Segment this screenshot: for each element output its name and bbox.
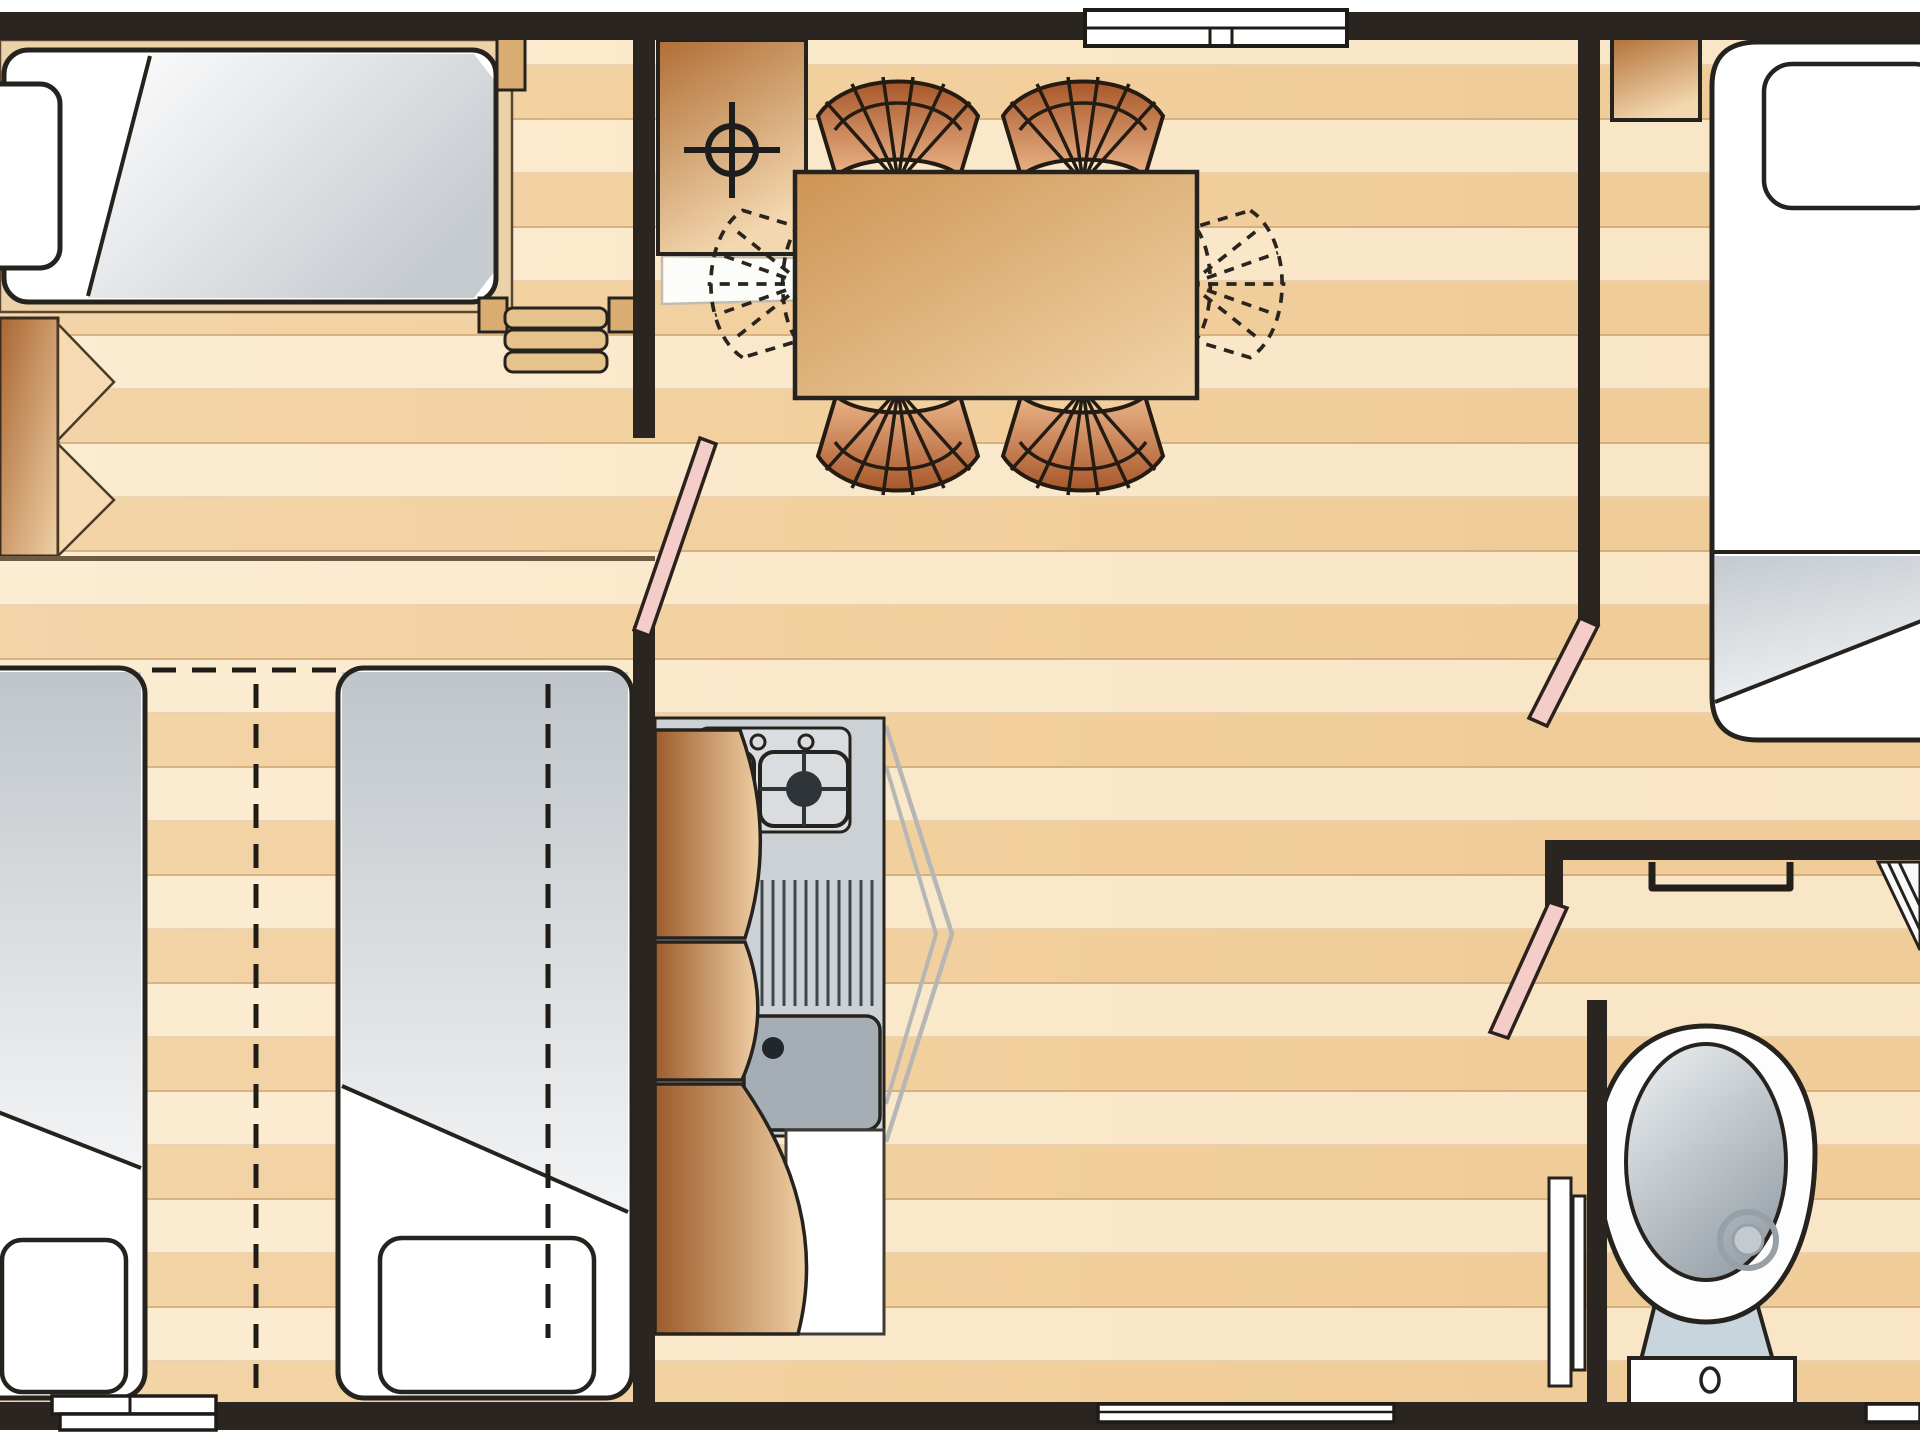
- wicker-chair-bottom-right: [1003, 390, 1163, 495]
- single-bed-blanket: [88, 54, 494, 298]
- wall-bottom: [0, 1402, 1920, 1430]
- towel-rail: [1652, 862, 1790, 888]
- wall-right-partition: [1578, 40, 1600, 626]
- floorplan-drawing: [0, 0, 1920, 1440]
- window-bottom-left-pane2: [60, 1414, 216, 1430]
- wall-left-partition-upper: [633, 40, 655, 438]
- wall-left-partition-lower: [633, 626, 655, 1404]
- hob-knob-1: [751, 735, 765, 749]
- bed-post-bottom: [479, 298, 507, 332]
- door-panel-inner: [1573, 1196, 1585, 1370]
- door-double-bedroom: [1529, 618, 1598, 726]
- wall-bathroom-left: [1587, 1000, 1607, 1404]
- double-bed-pillow: [1764, 64, 1920, 208]
- bed-step-3: [505, 352, 607, 372]
- twin-bed-right-pillow: [380, 1238, 594, 1392]
- dining-table: [795, 172, 1197, 398]
- wall-top: [0, 12, 1920, 40]
- single-bedroom-top-left: [0, 38, 655, 561]
- door-bathroom: [1490, 902, 1567, 1038]
- twin-bedroom: [0, 668, 632, 1398]
- bed-post-top: [497, 38, 525, 90]
- window-bottom-right: [1866, 1404, 1920, 1422]
- cistern-button: [1701, 1368, 1719, 1392]
- bed-step-1: [505, 308, 607, 328]
- bed-post-wall: [609, 298, 635, 332]
- wardrobe-door-swing-bottom: [58, 444, 114, 556]
- bedside-cabinet: [1612, 36, 1700, 120]
- floorplan-canvas: [0, 0, 1920, 1440]
- wall-bathroom-stub: [1545, 858, 1563, 906]
- cabinet-door-1: [655, 730, 760, 938]
- door-panel-outer: [1549, 1178, 1571, 1386]
- hob-knob-2: [799, 735, 813, 749]
- bed-step-2: [505, 330, 607, 350]
- wardrobe: [0, 318, 58, 556]
- exterior-bottom: [0, 1430, 1920, 1440]
- door-twin-bedroom: [634, 438, 716, 636]
- folding-chair-dashed-right: [1190, 210, 1286, 357]
- cabinet-door-2: [655, 942, 758, 1080]
- wicker-chair-top-left: [818, 77, 978, 182]
- fold-door-outline-outer: [886, 726, 952, 1142]
- twin-bed-left-blanket: [0, 672, 141, 1168]
- twin-bed-left-pillow: [2, 1240, 126, 1392]
- kitchen-unit: [655, 718, 952, 1334]
- single-bed-pillow: [0, 84, 60, 268]
- room-divider-line: [0, 556, 655, 561]
- wicker-chair-top-right: [1003, 77, 1163, 182]
- window-bottom-left-pane1: [52, 1396, 216, 1414]
- exterior-top: [0, 0, 1920, 12]
- double-bedroom: [1612, 36, 1920, 740]
- fold-door-outline-inner: [886, 766, 936, 1104]
- kitchen-sink: [744, 1016, 880, 1130]
- wicker-chair-bottom-left: [818, 390, 978, 495]
- wall-bathroom-top: [1545, 840, 1920, 860]
- wardrobe-door-swing-top: [58, 324, 114, 440]
- burner-ring: [786, 771, 822, 807]
- toilet-drain: [1733, 1225, 1763, 1255]
- sink-tap: [762, 1037, 784, 1059]
- corner-shelf: [1878, 862, 1920, 950]
